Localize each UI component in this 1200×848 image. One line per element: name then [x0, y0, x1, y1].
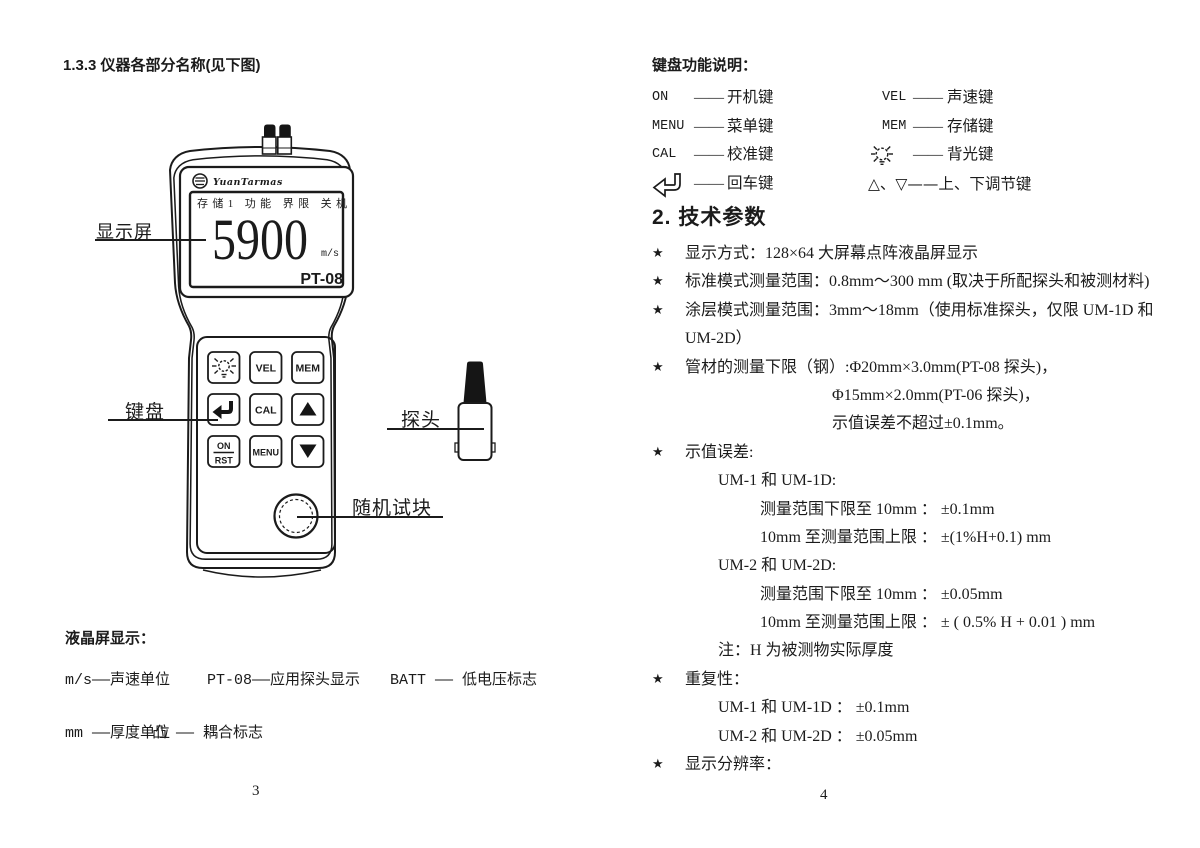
- dash: ——: [913, 113, 943, 142]
- key-row-cal-backlight: CAL —— 校准键 —— 背光键: [650, 141, 1170, 170]
- backlight-icon: [869, 144, 895, 168]
- brand-text: YuanTarmas: [213, 177, 283, 188]
- key-row-on-vel: ON —— 开机键 VEL —— 声速键: [650, 84, 1170, 113]
- key-name-mem: MEM: [882, 113, 906, 142]
- rst-key-label: RST: [215, 456, 234, 466]
- spec-line: ★示值误差:: [650, 439, 1190, 467]
- up-key-icon: [300, 402, 317, 416]
- key-name-menu: MENU: [652, 113, 684, 142]
- key-desc-backlight: 背光键: [947, 141, 994, 170]
- star-icon: ★: [652, 354, 664, 382]
- spec-line: ★显示分辨率：: [650, 751, 1190, 779]
- lcd-model: PT-08: [300, 271, 343, 288]
- key-name-on: ON: [652, 84, 668, 113]
- backlight-key-icon: [212, 359, 236, 378]
- mem-key-label: MEM: [296, 363, 321, 375]
- spec-line: 10mm 至测量范围上限 ： ±(1%H+0.1) mm: [650, 524, 1190, 552]
- spec-line: ★显示方式：128×64 大屏幕点阵液晶屏显示: [650, 240, 1190, 268]
- star-icon: ★: [652, 751, 664, 779]
- enter-icon: [651, 172, 684, 198]
- spec-line: ★涂层模式测量范围：3mm～18mm（使用标准探头，仅限 UM-1D 和: [650, 297, 1190, 325]
- callout-test-block-label: 随机试块: [352, 493, 432, 520]
- spec-line: 注：H 为被测物实际厚度: [650, 637, 1190, 665]
- on-key-label: ON: [217, 441, 231, 451]
- star-icon: ★: [652, 439, 664, 467]
- backlight-key[interactable]: [208, 352, 240, 383]
- page-number-left: 3: [252, 783, 260, 800]
- key-desc-menu: 菜单键: [727, 113, 774, 142]
- legend-pt08: PT-08——应用探头显示: [207, 669, 360, 693]
- left-section-title: 1.3.3 仪器各部分名称(见下图): [63, 54, 261, 75]
- spec-line: 测量范围下限至 10mm ： ±0.1mm: [650, 496, 1190, 524]
- legend-ms: m/s——声速单位: [65, 669, 170, 693]
- key-row-enter-updown: —— 回车键 △、▽——上、下调节键: [650, 170, 1170, 199]
- dash: ——: [694, 170, 724, 199]
- callout-keypad-label: 键盘: [125, 397, 165, 424]
- probe-illustration: [450, 360, 500, 465]
- keys-heading: 键盘功能说明：: [652, 54, 757, 75]
- star-icon: ★: [652, 297, 664, 325]
- star-icon: ★: [652, 268, 664, 296]
- spec-line: 10mm 至测量范围上限 ： ± ( 0.5% H + 0.01 ) mm: [650, 609, 1190, 637]
- callout-display-label: 显示屏: [96, 218, 153, 244]
- star-icon: ★: [652, 240, 664, 268]
- spec-line: ★管材的测量下限（钢）:Φ20mm×3.0mm(PT-08 探头)，: [650, 354, 1190, 382]
- legend-row-1: m/s——声速单位 PT-08——应用探头显示 BATT —— 低电压标志: [0, 669, 600, 693]
- key-row-menu-mem: MENU —— 菜单键 MEM —— 存储键: [650, 113, 1170, 142]
- legend-coupling: 凸 —— 耦合标志: [152, 722, 263, 746]
- spec-line: 测量范围下限至 10mm ： ±0.05mm: [650, 581, 1190, 609]
- key-desc-updown: △、▽——上、下调节键: [868, 170, 1031, 199]
- legend-row-2: mm ——厚度单位 凸 —— 耦合标志: [0, 722, 600, 746]
- spec-list: ★显示方式：128×64 大屏幕点阵液晶屏显示 ★标准模式测量范围：0.8mm～…: [650, 240, 1190, 779]
- cal-key-label: CAL: [255, 405, 277, 417]
- down-key-icon: [300, 445, 317, 459]
- key-desc-mem: 存储键: [947, 113, 994, 142]
- dash: ——: [694, 141, 724, 170]
- star-icon: ★: [652, 666, 664, 694]
- connector-plugs: [263, 125, 292, 155]
- spec-line: ★标准模式测量范围：0.8mm～300 mm (取决于所配探头和被测材料): [650, 268, 1190, 296]
- dash: ——: [694, 84, 724, 113]
- device-bottom-curve: [203, 570, 321, 577]
- legend-batt: BATT —— 低电压标志: [390, 669, 537, 693]
- tech-section-title: 2. 技术参数: [652, 201, 766, 231]
- spec-line: ★重复性：: [650, 666, 1190, 694]
- spec-line: Φ15mm×2.0mm(PT-06 探头)，: [650, 382, 1190, 410]
- spec-line: UM-2D）: [650, 325, 1190, 353]
- enter-key-icon: [213, 401, 234, 419]
- dash: ——: [694, 113, 724, 142]
- vel-key-label: VEL: [256, 363, 277, 375]
- lcd-unit: m/s: [321, 248, 339, 260]
- key-desc-cal: 校准键: [727, 141, 774, 170]
- spec-line: UM-1 和 UM-1D ： ±0.1mm: [650, 694, 1190, 722]
- menu-key-label: MENU: [253, 448, 279, 458]
- key-function-list: ON —— 开机键 VEL —— 声速键 MENU —— 菜单键 MEM —— …: [650, 84, 1170, 198]
- callout-probe-label: 探头: [401, 405, 441, 432]
- spec-line: UM-2 和 UM-2D:: [650, 552, 1190, 580]
- spec-line: UM-2 和 UM-2D ： ±0.05mm: [650, 723, 1190, 751]
- lcd-value: 5900: [212, 207, 308, 272]
- key-desc-vel: 声速键: [947, 84, 994, 113]
- page-number-right: 4: [820, 787, 828, 804]
- spec-line: UM-1 和 UM-1D:: [650, 467, 1190, 495]
- dash: ——: [913, 141, 943, 170]
- key-name-vel: VEL: [882, 84, 906, 113]
- dash: ——: [913, 84, 943, 113]
- probe-body: [459, 403, 492, 460]
- device-illustration: YuanTarmas 存储1 功能 界限 关机 5900 m/s PT-08: [140, 118, 450, 593]
- key-desc-enter: 回车键: [727, 170, 774, 199]
- probe-cable-top: [464, 362, 487, 404]
- key-name-cal: CAL: [652, 141, 676, 170]
- key-desc-on: 开机键: [727, 84, 774, 113]
- spec-line: 示值误差不超过±0.1mm。: [650, 410, 1190, 438]
- manual-spread: 1.3.3 仪器各部分名称(见下图) YuanTarmas 存储1: [0, 0, 1200, 848]
- legend-heading: 液晶屏显示：: [65, 627, 155, 648]
